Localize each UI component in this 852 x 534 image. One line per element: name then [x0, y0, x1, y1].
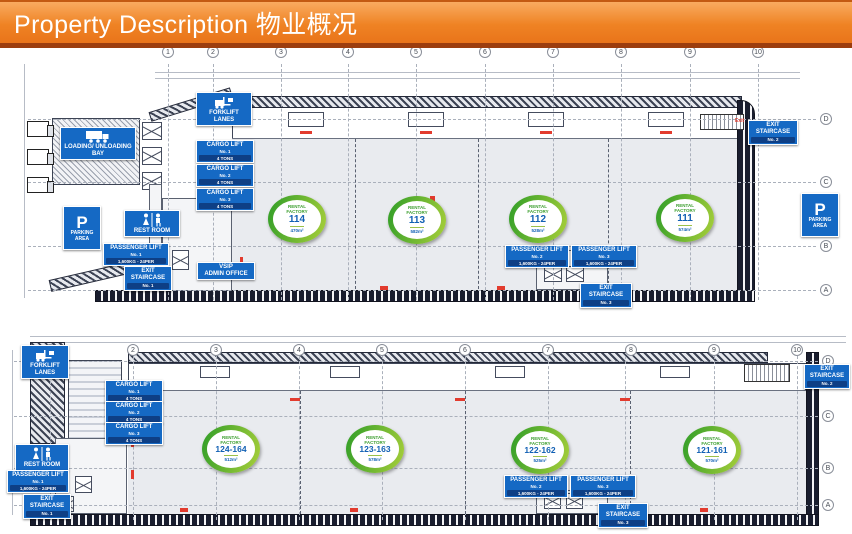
passenger-lift-capacity: 1,600KG - 24PER — [10, 485, 66, 491]
dimension-line — [30, 342, 846, 343]
exit-staircase-title: EXIT STAIRCASE — [601, 505, 645, 519]
dock-door — [142, 147, 162, 165]
factory-badge-114: RENTAL FACTORY 114 470m² — [268, 195, 326, 243]
cargo-lift-2-label: CARGO LIFT No. 2 4 TONS — [105, 401, 163, 424]
door-marker — [131, 470, 134, 479]
lift-shaft — [566, 266, 584, 282]
truck-icon — [27, 121, 49, 137]
passenger-lift-title: PASSENGER LIFT — [110, 245, 162, 252]
dimension-line — [155, 78, 800, 79]
forklift-lanes-label: FORKLIFT LANES — [21, 345, 69, 379]
cargo-lift-title: CARGO LIFT — [116, 403, 153, 410]
cargo-lift-title: CARGO LIFT — [207, 166, 244, 173]
grid-line — [28, 119, 816, 120]
door-marker — [350, 508, 358, 512]
rest-room-text: REST ROOM — [24, 462, 60, 469]
exit-staircase-no: No. 1 — [127, 283, 169, 289]
passenger-lift-capacity: 1,600KG - 24PER — [574, 260, 634, 266]
rest-room-text: REST ROOM — [134, 228, 170, 235]
factory-unit: 112 — [530, 215, 546, 226]
dimension-line — [24, 64, 25, 298]
factory-badge-inner: RENTAL FACTORY 113 582m² — [393, 201, 441, 239]
dimension-line — [30, 336, 846, 337]
cargo-lift-no: No. 1 — [219, 149, 230, 154]
factory-badge-inner: RENTAL FACTORY 121-161 570m² — [688, 431, 736, 469]
forklift-lanes-label: FORKLIFT LANES — [196, 92, 252, 126]
grid-line — [14, 505, 818, 506]
exit-staircase-2-label: EXIT STAIRCASE No. 2 — [748, 120, 798, 145]
truck-icon — [85, 130, 111, 143]
factory-unit: 111 — [677, 214, 693, 225]
cargo-lift-3-label: CARGO LIFT No. 3 4 TONS — [196, 188, 254, 211]
admin-office-line1: VSIP — [219, 264, 233, 271]
cargo-lift-no: No. 3 — [219, 197, 230, 202]
truck-icon — [27, 177, 49, 193]
wall-bottom — [30, 514, 819, 526]
factory-unit: 122-162 — [524, 446, 555, 455]
parking-p: P — [814, 201, 825, 218]
passenger-lift-3-label: PASSENGER LIFT No. 3 1,600KG - 24PER — [570, 475, 636, 498]
exit-staircase-title: EXIT STAIRCASE — [751, 122, 795, 136]
factory-badge-inner: RENTAL FACTORY 111 574m² — [661, 199, 709, 237]
cargo-lift-no: No. 2 — [219, 173, 230, 178]
passenger-lift-capacity: 1,600KG - 24PER — [573, 490, 633, 496]
factory-badge-inner: RENTAL FACTORY 123-163 578m² — [351, 430, 399, 468]
unit-divider — [465, 391, 466, 514]
unit-divider — [355, 139, 356, 289]
grid-row-marker: C — [822, 410, 834, 422]
cargo-lift-no: No. 1 — [128, 389, 139, 394]
unit-divider — [300, 391, 301, 514]
factory-area: 470m² — [290, 226, 303, 233]
exit-staircase-title: EXIT STAIRCASE — [807, 366, 847, 380]
door-marker — [380, 286, 388, 290]
grid-column-marker: 3 — [210, 344, 222, 356]
rest-room-label: REST ROOM — [124, 210, 180, 237]
grid-column-marker: 5 — [376, 344, 388, 356]
cargo-lift-title: CARGO LIFT — [116, 382, 153, 389]
grid-line — [28, 182, 816, 183]
door-marker — [700, 508, 708, 512]
cargo-lift-title: CARGO LIFT — [207, 190, 244, 197]
door-marker — [620, 398, 630, 401]
grid-column-marker: 4 — [293, 344, 305, 356]
admin-office-label: VSIP ADMIN OFFICE — [197, 262, 255, 280]
cargo-lift-capacity: 4 TONS — [108, 437, 160, 443]
door-marker — [290, 398, 300, 401]
exit-staircase-3-label: EXIT STAIRCASE No. 3 — [598, 503, 648, 528]
factory-unit: 113 — [409, 216, 425, 227]
exit-staircase-title: EXIT STAIRCASE — [26, 496, 68, 510]
wall-bottom — [95, 290, 755, 302]
grid-column-marker: 8 — [625, 344, 637, 356]
factory-unit: 121-161 — [696, 446, 727, 455]
door-marker — [497, 286, 505, 290]
parking-area-label: P PARKING AREA — [63, 206, 101, 250]
forklift-icon — [34, 348, 56, 362]
dock-door — [330, 366, 360, 378]
passenger-lift-no: No. 3 — [597, 484, 608, 489]
exit-staircase-no: No. 1 — [26, 511, 68, 517]
grid-line — [14, 361, 818, 362]
passenger-lift-2-label: PASSENGER LIFT No. 2 1,600KG - 24PER — [504, 475, 568, 498]
exit-staircase-title: EXIT STAIRCASE — [583, 285, 629, 299]
cargo-lift-2-label: CARGO LIFT No. 2 4 TONS — [196, 164, 254, 187]
passenger-lift-no: No. 1 — [32, 479, 43, 484]
passenger-lift-2-label: PASSENGER LIFT No. 2 1,600KG - 24PER — [505, 245, 569, 268]
factory-area: 578m² — [368, 455, 381, 462]
cargo-lift-no: No. 2 — [128, 410, 139, 415]
passenger-lift-title: PASSENGER LIFT — [511, 247, 563, 254]
unit-divider — [478, 139, 479, 289]
forklift-lanes-text: FORKLIFT LANES — [24, 363, 66, 377]
door-marker — [660, 131, 672, 134]
parking-p: P — [76, 214, 87, 231]
exit-staircase-1-label: EXIT STAIRCASE No. 1 — [124, 266, 172, 291]
dock-door — [495, 366, 525, 378]
factory-badge-inner: RENTAL FACTORY 122-162 525m² — [516, 431, 564, 469]
grid-row-marker: A — [822, 499, 834, 511]
cargo-lift-title: CARGO LIFT — [207, 142, 244, 149]
factory-unit: 114 — [289, 215, 305, 226]
loading-bay-label: LOADING/ UNLOADING BAY — [60, 127, 136, 160]
dock-door — [142, 122, 162, 140]
grid-row-marker: B — [820, 240, 832, 252]
exit-staircase-no: No. 3 — [601, 520, 645, 526]
passenger-lift-title: PASSENGER LIFT — [510, 477, 562, 484]
cargo-lift-3-label: CARGO LIFT No. 3 4 TONS — [105, 422, 163, 445]
exit-staircase-3-label: EXIT STAIRCASE No. 3 — [580, 283, 632, 308]
factory-area: 582m² — [410, 227, 423, 234]
grid-column-marker: 9 — [708, 344, 720, 356]
cargo-lift-1-label: CARGO LIFT No. 1 4 TONS — [105, 380, 163, 403]
door-marker — [300, 131, 312, 134]
grid-row-marker: D — [820, 113, 832, 125]
passenger-lift-title: PASSENGER LIFT — [577, 477, 629, 484]
passenger-lift-3-label: PASSENGER LIFT No. 3 1,600KG - 24PER — [571, 245, 637, 268]
grid-line — [797, 356, 798, 520]
truck-icon — [27, 149, 49, 165]
lift-shaft — [75, 476, 92, 493]
factory-badge-inner: RENTAL FACTORY 114 470m² — [273, 200, 321, 238]
wall-top — [230, 96, 742, 108]
cargo-lift-no: No. 3 — [128, 431, 139, 436]
door-marker — [540, 131, 552, 134]
factory-badge-111: RENTAL FACTORY 111 574m² — [656, 194, 714, 242]
passenger-lift-capacity: 1,600KG - 24PER — [507, 490, 565, 496]
parking-text: PARKING AREA — [804, 218, 836, 230]
factory-badge-122-162: RENTAL FACTORY 122-162 525m² — [511, 426, 569, 474]
factory-unit: 124-164 — [215, 445, 246, 454]
passenger-lift-capacity: 1,600KG - 24PER — [106, 258, 166, 264]
door-marker — [455, 398, 465, 401]
passenger-lift-no: No. 2 — [530, 484, 541, 489]
page-title: Property Description 物业概况 — [14, 5, 357, 41]
parking-text: PARKING AREA — [66, 231, 98, 243]
passenger-lift-no: No. 3 — [598, 254, 609, 259]
cargo-lift-capacity: 4 TONS — [199, 179, 251, 185]
door-marker — [180, 508, 188, 512]
passenger-lift-1-label: PASSENGER LIFT No. 1 1,600KG - 24PER — [103, 243, 169, 266]
grid-column-marker: 7 — [542, 344, 554, 356]
factory-area: 525m² — [533, 456, 546, 463]
exit-staircase-title: EXIT STAIRCASE — [127, 268, 169, 282]
door-marker — [420, 131, 432, 134]
parking-area-right-label: P PARKING AREA — [801, 193, 839, 237]
exit-staircase-no: No. 2 — [807, 381, 847, 387]
factory-badge-113: RENTAL FACTORY 113 582m² — [388, 196, 446, 244]
loading-bay-text: LOADING/ UNLOADING BAY — [63, 144, 133, 158]
factory-area: 570m² — [705, 456, 718, 463]
factory-badge-124-164: RENTAL FACTORY 124-164 512m² — [202, 425, 260, 473]
forklift-icon — [213, 95, 235, 109]
cargo-lift-title: CARGO LIFT — [116, 424, 153, 431]
exit-staircase-no: No. 3 — [583, 300, 629, 306]
passenger-lift-no: No. 2 — [531, 254, 542, 259]
cargo-lift-capacity: 4 TONS — [199, 203, 251, 209]
factory-unit: 123-163 — [359, 445, 390, 454]
passenger-lift-title: PASSENGER LIFT — [12, 472, 64, 479]
header-bar: Property Description 物业概况 — [0, 0, 852, 48]
grid-column-marker: 6 — [459, 344, 471, 356]
factory-badge-123-163: RENTAL FACTORY 123-163 578m² — [346, 425, 404, 473]
grid-column-marker: 2 — [127, 344, 139, 356]
dimension-line — [155, 72, 800, 73]
staircase — [744, 364, 790, 382]
factory-area: 574m² — [678, 225, 691, 232]
passenger-lift-capacity: 1,600KG - 24PER — [508, 260, 566, 266]
factory-area: 528m² — [531, 226, 544, 233]
factory-badge-inner: RENTAL FACTORY 124-164 512m² — [207, 430, 255, 468]
factory-badge-112: RENTAL FACTORY 112 528m² — [509, 195, 567, 243]
forklift-lanes-text: FORKLIFT LANES — [199, 110, 249, 124]
grid-row-marker: B — [822, 462, 834, 474]
dock-door — [660, 366, 690, 378]
exit-staircase-2-label: EXIT STAIRCASE No. 2 — [804, 364, 850, 389]
dock-door — [200, 366, 230, 378]
passenger-lift-title: PASSENGER LIFT — [578, 247, 630, 254]
grid-column-marker: 10 — [791, 344, 803, 356]
exit-staircase-no: No. 2 — [751, 137, 795, 143]
rest-room-label: REST ROOM — [15, 444, 69, 471]
passenger-lift-1-label: PASSENGER LIFT No. 1 1,600KG - 24PER — [7, 470, 69, 493]
grid-row-marker: C — [820, 176, 832, 188]
restroom-icon — [139, 213, 165, 227]
factory-badge-121-161: RENTAL FACTORY 121-161 570m² — [683, 426, 741, 474]
factory-badge-inner: RENTAL FACTORY 112 528m² — [514, 200, 562, 238]
grid-row-marker: A — [820, 284, 832, 296]
passenger-lift-no: No. 1 — [130, 252, 141, 257]
factory-area: 512m² — [224, 455, 237, 462]
cargo-lift-1-label: CARGO LIFT No. 1 4 TONS — [196, 140, 254, 163]
lift-shaft — [172, 250, 189, 270]
exit-staircase-1-label: EXIT STAIRCASE No. 1 — [23, 494, 71, 519]
exit-text: Exit — [735, 118, 744, 124]
restroom-icon — [29, 447, 55, 461]
cargo-lift-capacity: 4 TONS — [199, 155, 251, 161]
admin-office-line2: ADMIN OFFICE — [204, 271, 247, 278]
